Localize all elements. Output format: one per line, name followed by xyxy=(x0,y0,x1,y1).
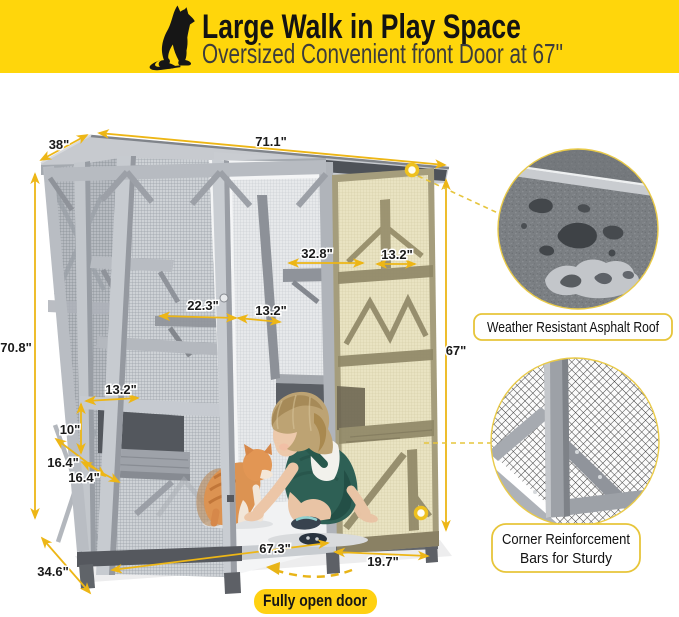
svg-text:32.8": 32.8" xyxy=(301,246,332,261)
svg-text:70.8": 70.8" xyxy=(0,340,31,355)
svg-text:22.3": 22.3" xyxy=(187,298,218,313)
svg-text:Weather Resistant Asphalt Roof: Weather Resistant Asphalt Roof xyxy=(487,320,660,336)
svg-text:16.4": 16.4" xyxy=(47,455,78,470)
svg-text:67": 67" xyxy=(446,343,467,358)
svg-text:67.3": 67.3" xyxy=(259,541,290,556)
svg-text:Fully open door: Fully open door xyxy=(263,592,367,610)
svg-text:16.4": 16.4" xyxy=(68,470,99,485)
svg-text:71.1": 71.1" xyxy=(255,134,286,149)
svg-text:Corner Reinforcement: Corner Reinforcement xyxy=(502,531,631,548)
svg-text:13.2": 13.2" xyxy=(255,303,286,318)
svg-text:38": 38" xyxy=(49,137,70,152)
svg-text:19.7": 19.7" xyxy=(367,554,398,569)
svg-text:13.2": 13.2" xyxy=(105,382,136,397)
svg-text:10": 10" xyxy=(60,422,81,437)
svg-text:Bars for Sturdy: Bars for Sturdy xyxy=(520,550,612,567)
svg-text:34.6": 34.6" xyxy=(37,564,68,579)
svg-text:13.2": 13.2" xyxy=(381,247,412,262)
